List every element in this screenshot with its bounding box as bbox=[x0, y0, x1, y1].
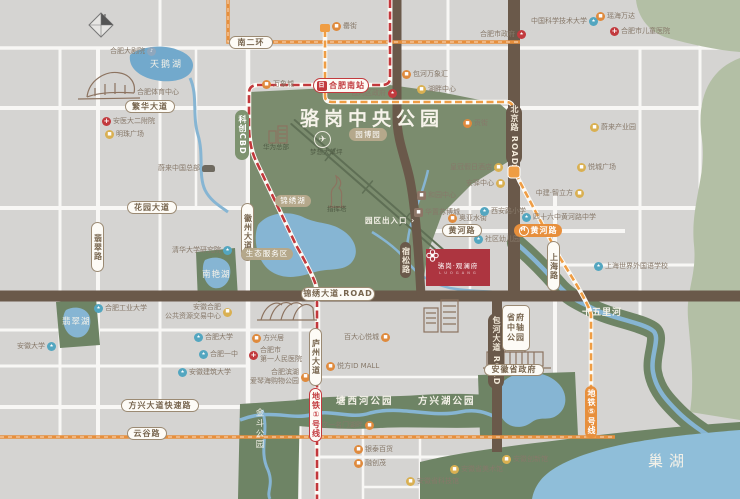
area-label: 金斗公园 bbox=[253, 408, 265, 450]
map-poi: ★安徽建筑大学 bbox=[178, 368, 231, 377]
road-label-text: 徽州大道 bbox=[243, 214, 253, 250]
road-label: 省府 中轴 公园 bbox=[502, 305, 530, 351]
map-poi-label: 湖畔中心 bbox=[428, 85, 456, 94]
map-poi-label: 悦方ID MALL bbox=[337, 362, 379, 371]
map-poi: ★安徽大学 bbox=[17, 342, 56, 351]
map-poi: ★上海世界外国语学校 bbox=[594, 262, 668, 271]
road-label-text: 上海路 bbox=[549, 253, 559, 280]
project-marker: 骆岗·观澜府 L U O G A N G bbox=[426, 249, 490, 286]
train-icon: 日 bbox=[317, 81, 327, 91]
school-icon: ★ bbox=[47, 342, 56, 351]
map-poi-label: 合肥体育中心 bbox=[137, 88, 179, 97]
mall-icon: ■ bbox=[448, 214, 457, 223]
map-poi: ■悦城广场 bbox=[577, 163, 616, 172]
road-label-text: 地铁⑤号线 bbox=[586, 389, 596, 435]
road-label-text: 花园大道 bbox=[134, 203, 170, 213]
map-poi: ★社区幼儿园 bbox=[474, 235, 520, 244]
road-label-text: 南二环 bbox=[238, 38, 265, 48]
map-poi: 梦想大草坪 bbox=[310, 148, 343, 156]
map-poi-label: 融创茂 bbox=[365, 459, 386, 468]
school-icon: ★ bbox=[194, 333, 203, 342]
road-label-text: 合肥南站 bbox=[329, 81, 365, 91]
mall-icon: ■ bbox=[402, 70, 411, 79]
brown-icon: ■ bbox=[417, 191, 426, 200]
brown-icon: ■ bbox=[414, 208, 423, 217]
map-poi: ■融创茂 bbox=[354, 459, 386, 468]
biz-icon: ■ bbox=[105, 130, 114, 139]
biz-icon: ■ bbox=[223, 308, 232, 317]
school-icon: ★ bbox=[199, 350, 208, 359]
mall-icon: ■ bbox=[354, 459, 363, 468]
hospital-icon: + bbox=[249, 351, 258, 360]
road-label-text: 地铁①号线 bbox=[311, 392, 321, 438]
map-poi-label: 安徽省美术馆 bbox=[461, 465, 503, 474]
map-poi: ■瑶海万达 bbox=[596, 12, 635, 21]
road-label-text: 园博园 bbox=[355, 130, 381, 139]
project-emblem-icon bbox=[426, 249, 439, 262]
map-poi-label: 合肥一中 bbox=[210, 350, 238, 359]
map-poi: +合肥市儿童医院 bbox=[610, 27, 670, 36]
map-poi-label: 银泰百货 bbox=[365, 445, 393, 454]
map-poi-label: 合肥大学 bbox=[205, 333, 233, 342]
map-poi: ■皇冠假日酒店 bbox=[450, 163, 503, 172]
map-poi: 华为总部 bbox=[263, 143, 289, 151]
road-label: 科创CBD bbox=[235, 110, 249, 160]
map-poi: ■万象城 bbox=[262, 80, 294, 89]
map-poi: ■湖畔中心 bbox=[417, 85, 456, 94]
map-poi: +合肥市 第一人民医院 bbox=[249, 346, 302, 364]
map-poi-label: 社区幼儿园 bbox=[485, 235, 520, 244]
map-poi: 合肥体育中心 bbox=[137, 88, 179, 97]
map-poi-label: 安医大二附院 bbox=[113, 117, 155, 126]
map-poi: ■安徽省科技馆 bbox=[406, 477, 459, 486]
hospital-icon: + bbox=[102, 117, 111, 126]
road-label-text: 黄河路 bbox=[531, 226, 558, 236]
map-poi-label: 万象城 bbox=[273, 80, 294, 89]
map-poi-label: 梦想大草坪 bbox=[310, 148, 343, 156]
plane-icon: ✈ bbox=[314, 131, 331, 148]
road-label-text: 生态服务区 bbox=[246, 249, 289, 258]
map-poi-label: 安徽建筑大学 bbox=[189, 368, 231, 377]
road-label-text: 宿松路 bbox=[401, 247, 411, 274]
map-poi: ★四十六中黄河路中学 bbox=[522, 213, 596, 222]
map-canvas: N 骆岗中央公园 骆岗·观澜府 L U O G A N G ★中国科学技术大学★… bbox=[0, 0, 740, 499]
road-label: 北京路 ROAD bbox=[506, 105, 522, 165]
map-poi-label: 合肥市政府 bbox=[480, 30, 515, 39]
biz-icon: ■ bbox=[590, 123, 599, 132]
road-label: 翡翠路 bbox=[91, 222, 104, 272]
road-label: 地铁⑤号线 bbox=[585, 386, 597, 438]
map-poi: ■安徽合肥 公共资源交易中心 bbox=[165, 303, 232, 321]
map-poi-label: 合肥工业大学 bbox=[105, 304, 147, 313]
mall-icon: ■ bbox=[354, 445, 363, 454]
school-icon: ★ bbox=[178, 368, 187, 377]
road-label: 花园大道 bbox=[127, 201, 177, 214]
map-poi-label: 上海世界外国语学校 bbox=[605, 262, 668, 271]
biz-icon: ■ bbox=[450, 465, 459, 474]
biz-icon: ■ bbox=[577, 163, 586, 172]
map-poi: ■明珠广场 bbox=[105, 130, 144, 139]
road-label: 日合肥南站 bbox=[313, 78, 369, 93]
biz-icon: ■ bbox=[496, 179, 505, 188]
area-label: 巢湖 bbox=[648, 450, 690, 471]
map-poi-label: 和园中心 bbox=[428, 191, 456, 200]
gov-icon: ★ bbox=[517, 30, 526, 39]
road-label: 园博园 bbox=[349, 128, 387, 141]
road-label: 庐州大道 bbox=[309, 328, 322, 386]
map-poi: ■合肥滨湖 爱琴海购物公园 bbox=[250, 368, 310, 386]
map-poi-label: 皇冠假日酒店 bbox=[450, 163, 492, 172]
map-poi: ★合肥工业大学 bbox=[94, 304, 147, 313]
road-label: 方兴大道快速路 bbox=[121, 399, 199, 412]
compass-needle-icon bbox=[88, 12, 114, 38]
mall-icon: ■ bbox=[252, 334, 261, 343]
road-label: 地铁①号线 bbox=[309, 388, 322, 442]
project-subtitle: L U O G A N G bbox=[439, 271, 476, 275]
road-label: 繁华大道 bbox=[125, 100, 175, 113]
map-poi: ■安徽省美术馆 bbox=[450, 465, 503, 474]
road-label: 宿松路 bbox=[400, 242, 411, 278]
area-label: 十五里河 bbox=[582, 305, 622, 318]
road-label: 南二环 bbox=[229, 36, 273, 49]
map-poi-label: 贡街 bbox=[474, 119, 488, 128]
map-poi-label: 安驿中心 bbox=[466, 179, 494, 188]
mall-icon: ■ bbox=[332, 22, 341, 31]
area-label: 方兴湖公园 bbox=[418, 393, 476, 407]
map-poi: ■方兴居 bbox=[252, 334, 284, 343]
road-label-text: 北京路 ROAD bbox=[509, 105, 519, 165]
map-poi-label: 罍街 bbox=[343, 22, 357, 31]
map-poi: ★合肥市政府 bbox=[480, 30, 526, 39]
road-label: M黄河路 bbox=[514, 224, 562, 237]
metro-icon: M bbox=[519, 226, 529, 236]
map-poi: 蔚来中国总部 bbox=[158, 164, 215, 173]
road-label: 黄河路 bbox=[442, 224, 482, 237]
road-label-text: 省府 中轴 公园 bbox=[507, 313, 525, 343]
area-label: 翡翠湖 bbox=[62, 315, 91, 327]
biz-icon: ■ bbox=[406, 477, 415, 486]
road-label: 生态服务区 bbox=[241, 248, 293, 260]
road-label-text: 庐州大道 bbox=[311, 339, 321, 375]
biz-icon: ■ bbox=[502, 455, 511, 464]
map-poi-label: 安徽省科技馆 bbox=[417, 477, 459, 486]
biz-icon: ■ bbox=[417, 85, 426, 94]
map-poi-label: 方兴居 bbox=[263, 334, 284, 343]
map-poi: ■和园中心 bbox=[417, 191, 456, 200]
road-label-text: 云谷路 bbox=[134, 429, 161, 439]
road-label-text: 安徽省政府 bbox=[492, 365, 537, 375]
map-poi-label: 百大心悦城 bbox=[344, 333, 379, 342]
map-poi-label: 蔚来中国总部 bbox=[158, 164, 200, 173]
mall-icon: ■ bbox=[381, 333, 390, 342]
map-poi-label: 瑶海万达 bbox=[607, 12, 635, 21]
map-poi: ♪合肥大剧院 bbox=[110, 47, 156, 56]
biz-icon: ■ bbox=[494, 163, 503, 172]
map-poi: ■贡街 bbox=[463, 119, 488, 128]
map-poi: ■安徽创新馆 bbox=[502, 455, 548, 464]
road-label-text: 黄河路 bbox=[449, 226, 476, 236]
road-label-text: 锦绣大道.ROAD bbox=[303, 289, 373, 299]
map-poi-label: 四十六中黄河路中学 bbox=[533, 213, 596, 222]
map-poi-label: 园区出入口 › bbox=[365, 216, 415, 226]
hospital-icon: + bbox=[610, 27, 619, 36]
road-label: 锦绣大道.ROAD bbox=[301, 287, 375, 301]
map-poi: ★合肥大学 bbox=[194, 333, 233, 342]
map-poi: ■百大心悦城 bbox=[344, 333, 390, 342]
road-label: 上海路 bbox=[547, 241, 560, 291]
gov-icon: ★ bbox=[388, 89, 397, 98]
map-poi-label: 合肥滨湖 爱琴海购物公园 bbox=[250, 368, 299, 386]
map-poi-label: 合肥大剧院 bbox=[110, 47, 145, 56]
map-poi: ■文一名门湖畔 bbox=[321, 421, 374, 430]
mall-icon: ■ bbox=[596, 12, 605, 21]
map-poi-label: 华为总部 bbox=[263, 143, 289, 151]
map-poi: ★清华大学研究院 bbox=[172, 246, 232, 255]
map-poi-label: 清华大学研究院 bbox=[172, 246, 221, 255]
school-icon: ★ bbox=[223, 246, 232, 255]
road-label-text: 翡翠路 bbox=[93, 234, 103, 261]
map-poi: ★西安路小学 bbox=[480, 207, 526, 216]
map-poi: 指挥塔 bbox=[327, 205, 347, 213]
road-label-text: 方兴大道快速路 bbox=[129, 401, 192, 411]
label-overlay: N 骆岗中央公园 骆岗·观澜府 L U O G A N G ★中国科学技术大学★… bbox=[0, 0, 740, 499]
map-poi-label: 文一名门湖畔 bbox=[321, 421, 363, 430]
map-poi-label: 包河万象汇 bbox=[413, 70, 448, 79]
area-label: 塘西河公园 bbox=[336, 393, 394, 407]
map-poi-label: 合肥市儿童医院 bbox=[621, 27, 670, 36]
car-icon bbox=[202, 165, 215, 172]
map-poi-label: 中国科学技术大学 bbox=[531, 17, 587, 26]
road-label: 安徽省政府 bbox=[484, 364, 544, 376]
map-poi: ■包河万象汇 bbox=[402, 70, 448, 79]
school-icon: ★ bbox=[480, 207, 489, 216]
map-poi: ■中建·智立方 bbox=[536, 189, 584, 198]
compass: N bbox=[88, 12, 118, 25]
map-poi-label: 合肥市 第一人民医院 bbox=[260, 346, 302, 364]
mall-icon: ■ bbox=[326, 362, 335, 371]
road-label-text: 锦绣湖 bbox=[280, 196, 306, 205]
mall-icon: ■ bbox=[365, 421, 374, 430]
map-poi: ■蔚来产业园 bbox=[590, 123, 636, 132]
map-poi: +安医大二附院 bbox=[102, 117, 155, 126]
map-poi: ★合肥一中 bbox=[199, 350, 238, 359]
map-poi: ■银泰百货 bbox=[354, 445, 393, 454]
school-icon: ★ bbox=[94, 304, 103, 313]
map-poi-label: 中建·智立方 bbox=[536, 189, 573, 198]
area-label: 南艳湖 bbox=[202, 268, 231, 280]
map-poi: ■安驿中心 bbox=[466, 179, 505, 188]
map-poi: ■罍街 bbox=[332, 22, 357, 31]
school-icon: ★ bbox=[594, 262, 603, 271]
road-label-text: 科创CBD bbox=[237, 115, 247, 155]
road-label: 云谷路 bbox=[127, 427, 167, 440]
map-poi-label: 安徽合肥 公共资源交易中心 bbox=[165, 303, 221, 321]
map-poi-label: 蔚来产业园 bbox=[601, 123, 636, 132]
school-icon: ★ bbox=[522, 213, 531, 222]
mall-icon: ■ bbox=[463, 119, 472, 128]
map-poi-label: 安徽大学 bbox=[17, 342, 45, 351]
road-label-text: 繁华大道 bbox=[132, 102, 168, 112]
project-name: 骆岗·观澜府 bbox=[438, 260, 479, 270]
map-poi-label: 悦城广场 bbox=[588, 163, 616, 172]
map-poi: ★中国科学技术大学 bbox=[531, 17, 598, 26]
map-poi: ■悦方ID MALL bbox=[326, 362, 379, 371]
biz-icon: ■ bbox=[575, 189, 584, 198]
map-poi-label: 西安路小学 bbox=[491, 207, 526, 216]
map-poi-label: 安徽创新馆 bbox=[513, 455, 548, 464]
mall-icon: ■ bbox=[262, 80, 271, 89]
map-poi-label: 明珠广场 bbox=[116, 130, 144, 139]
map-poi-label: 指挥塔 bbox=[327, 205, 347, 213]
area-label: 天鹅湖 bbox=[150, 57, 183, 70]
road-label: 锦绣湖 bbox=[275, 195, 311, 207]
map-poi: 园区出入口 › bbox=[365, 216, 415, 226]
venue-icon: ♪ bbox=[147, 47, 156, 56]
park-title: 骆岗中央公园 bbox=[300, 104, 444, 131]
